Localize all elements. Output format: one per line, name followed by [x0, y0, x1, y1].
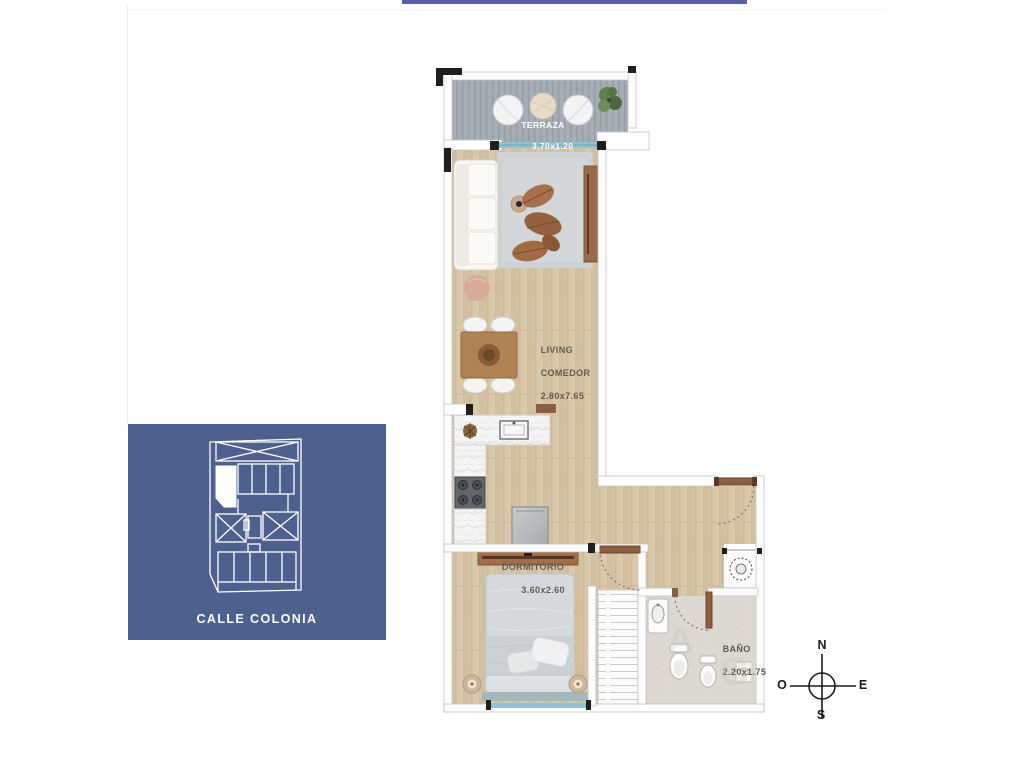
street-label: CALLE COLONIA — [128, 612, 386, 626]
building-outline-schematic — [128, 424, 386, 640]
dining-chair — [463, 317, 487, 333]
faint-page-border-horizontal — [127, 9, 885, 10]
nightstand-left — [463, 675, 481, 693]
compass-north-label: N — [815, 638, 829, 652]
tv-unit — [584, 166, 600, 262]
dining-chair — [463, 377, 487, 393]
living-dims: 2.80x7.65 — [541, 391, 585, 401]
headboard — [482, 692, 590, 701]
terraza-dims: 3.70x1.20 — [532, 141, 573, 151]
compass-south-label: S — [814, 708, 828, 722]
washing-machine — [723, 550, 759, 588]
compass-rose — [770, 628, 900, 740]
kitchen-counter-lower — [454, 509, 486, 547]
room-label-living: LIVING COMEDOR 2.80x7.65 — [529, 333, 590, 402]
faint-page-border-vertical — [127, 4, 128, 426]
highlighted-unit — [216, 466, 236, 507]
room-label-terraza: TERRAZA 3.70x1.20 — [491, 120, 595, 152]
watermark-letter-c: C — [719, 650, 748, 695]
fridge — [512, 507, 548, 544]
sofa — [454, 160, 498, 270]
stove — [455, 477, 485, 509]
living-name-2: COMEDOR — [541, 368, 591, 378]
compass-west-label: O — [775, 678, 789, 692]
terraza-name: TERRAZA — [521, 120, 564, 130]
compass-east-label: E — [856, 678, 870, 692]
closet-shelves — [598, 590, 638, 704]
dormitorio-name: DORMITORIO — [502, 562, 564, 572]
vanity-sink — [648, 599, 668, 633]
hall-floor — [598, 486, 756, 544]
watermark-letter-a: A — [667, 620, 694, 663]
dining-chair — [491, 377, 515, 393]
page: CALLE COLONIA — [0, 0, 1024, 768]
top-accent-bar — [402, 0, 747, 4]
kitchen-cabinet-edge — [536, 404, 556, 413]
location-inset: CALLE COLONIA — [128, 424, 386, 640]
living-name-1: LIVING — [541, 345, 573, 355]
room-label-dormitorio: DORMITORIO 3.60x2.60 — [474, 562, 592, 597]
dormitorio-dims: 3.60x2.60 — [521, 585, 565, 595]
nightstand-right — [569, 675, 587, 693]
dining-chair — [491, 317, 515, 333]
bedroom-window — [491, 703, 586, 708]
